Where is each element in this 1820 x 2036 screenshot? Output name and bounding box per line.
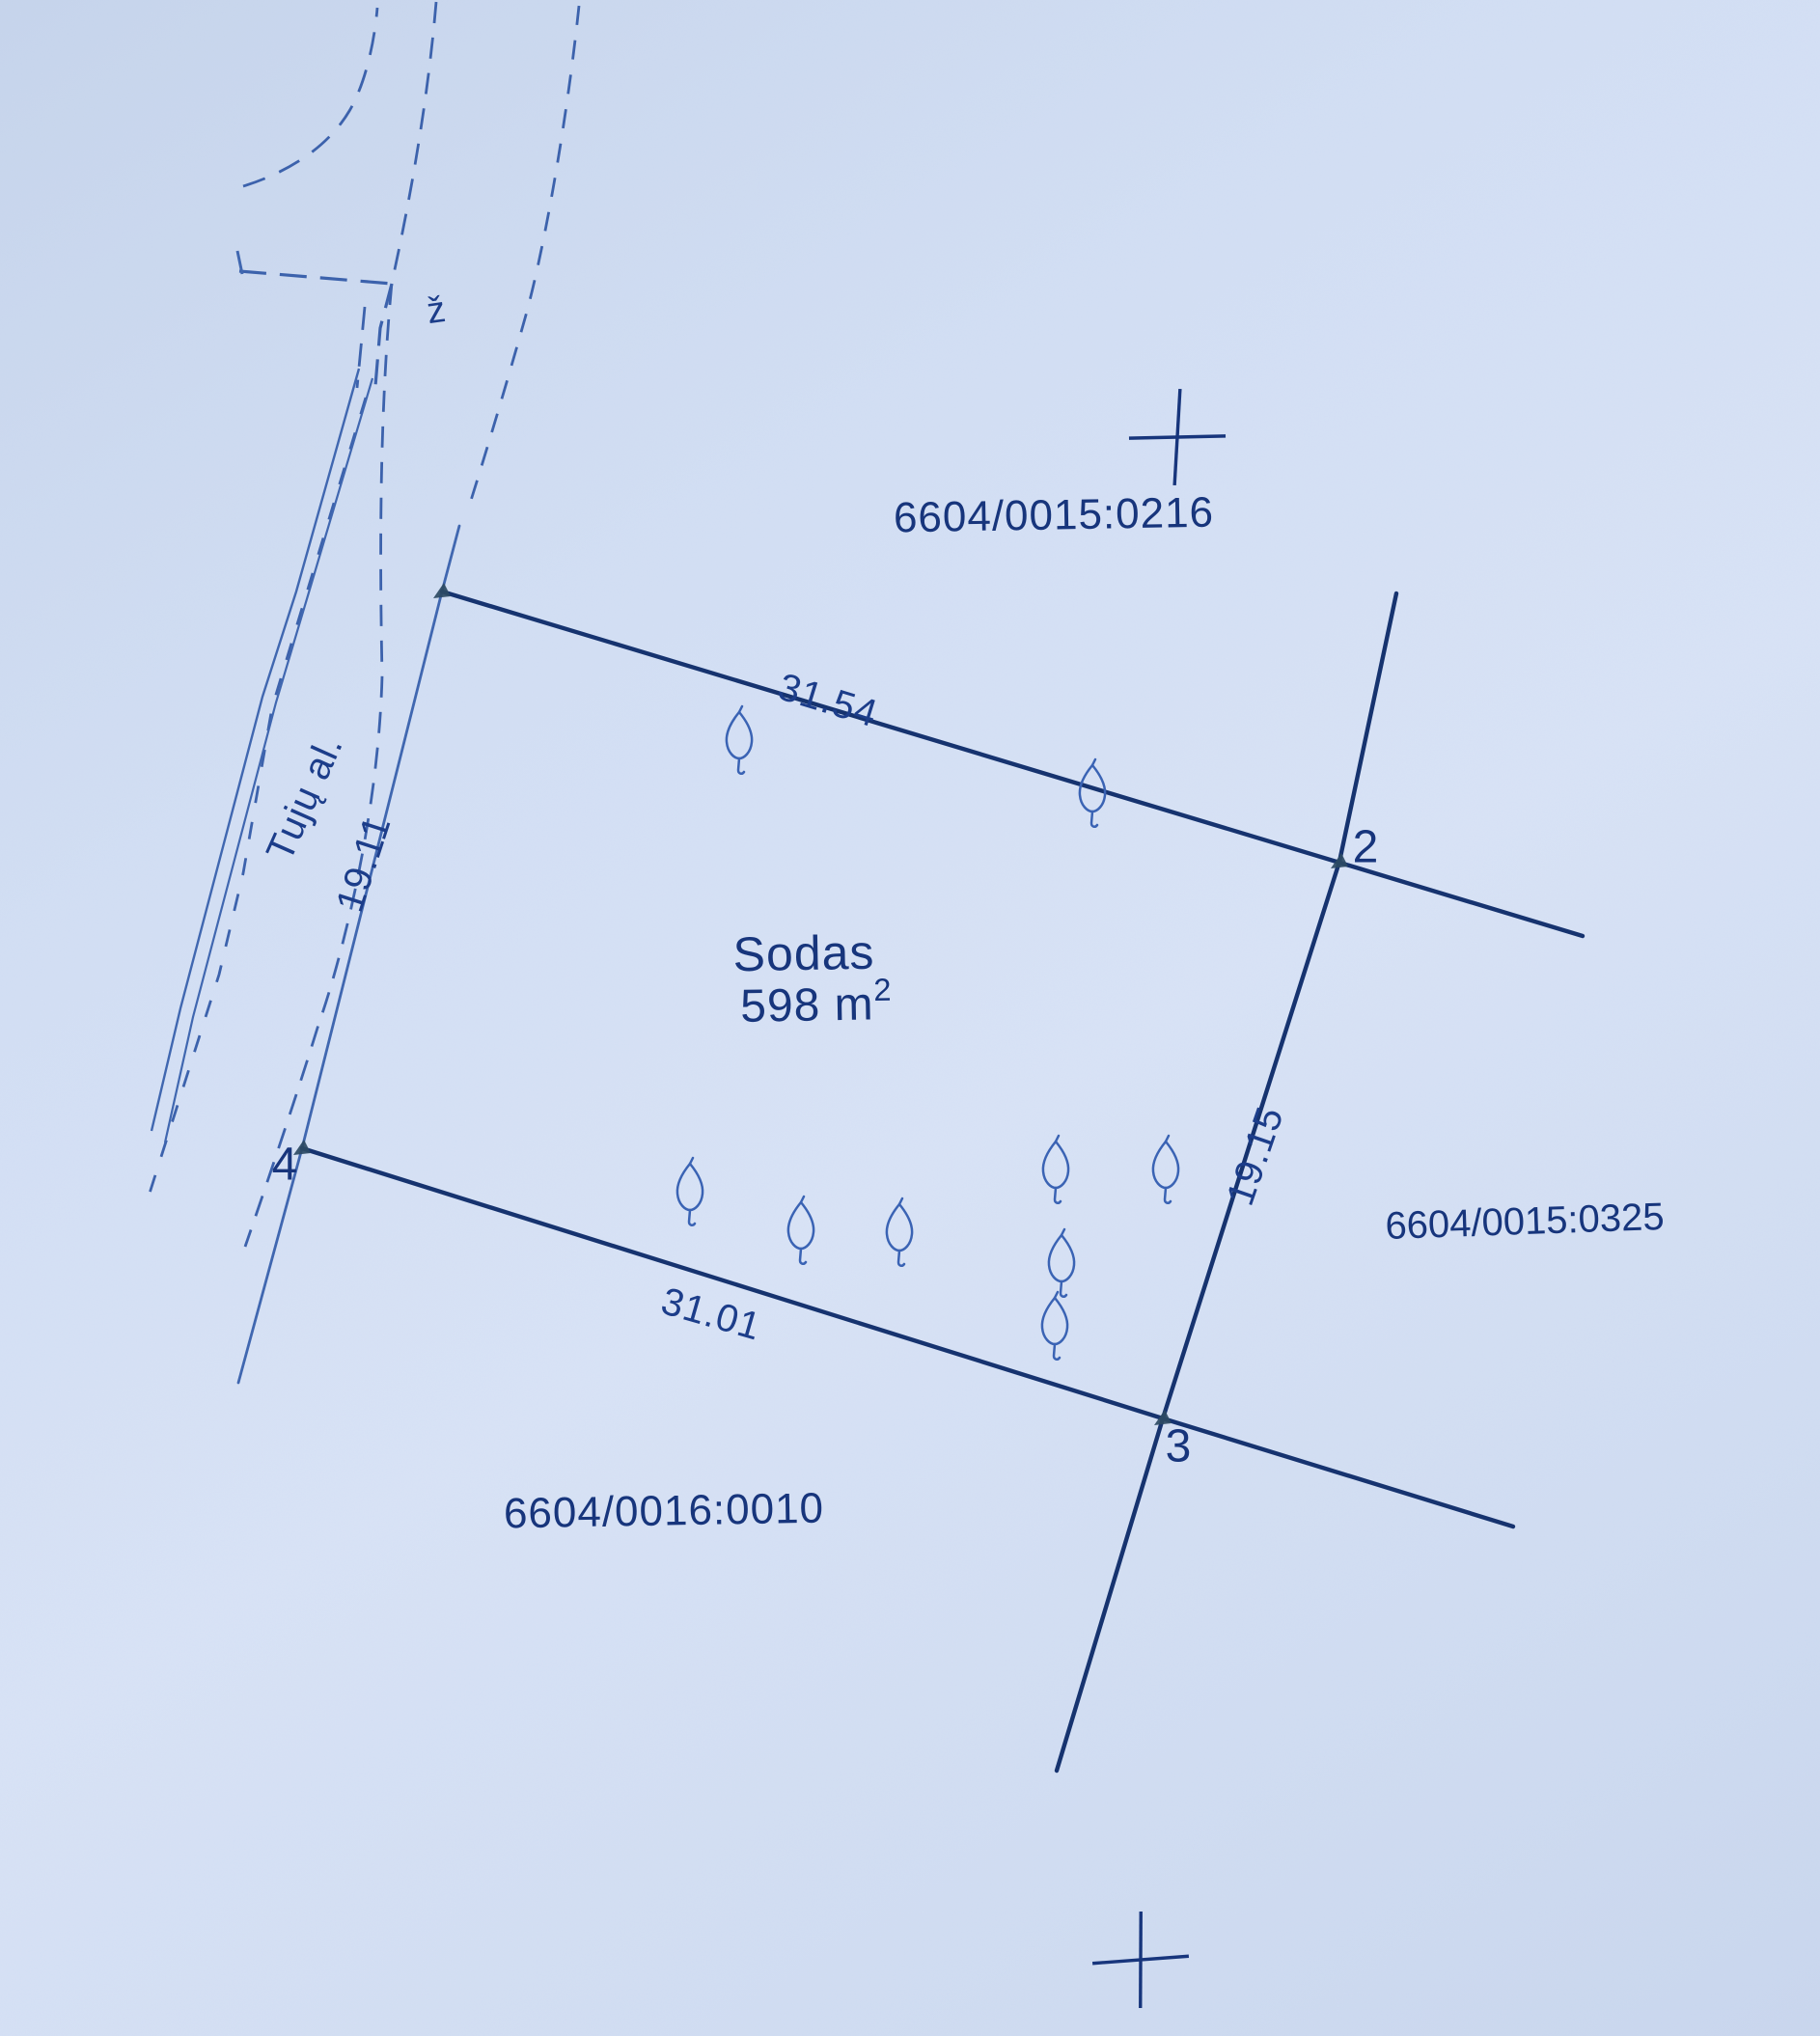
parcel-id-0010: 6604/0016:0010 [504, 1485, 825, 1538]
corner-label-3: 3 [1166, 1421, 1192, 1472]
cadastral-plan-scan: 6604/0015:02166604/0015:03256604/0016:00… [0, 0, 1820, 2036]
corner-label-2: 2 [1353, 822, 1379, 873]
parcel-id-0216: 6604/0015:0216 [894, 489, 1215, 542]
paper-grain [0, 0, 1820, 2036]
survey-plan-drawing: 6604/0015:02166604/0015:03256604/0016:00… [0, 0, 1820, 2036]
parcel-name: Sodas [732, 925, 875, 982]
parcel-area: 598 m2 [740, 971, 894, 1032]
corner-label-4: 4 [272, 1140, 298, 1191]
